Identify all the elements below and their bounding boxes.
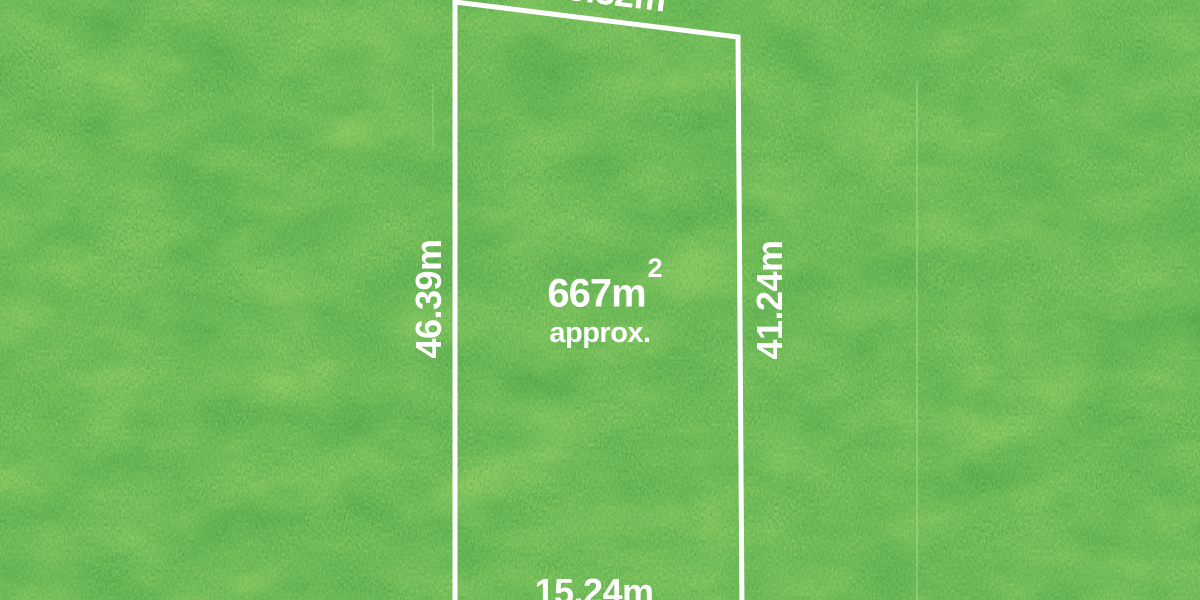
grass-background bbox=[0, 0, 1200, 600]
land-lot-image: 15.32m 46.39m 41.24m 15.24m 667m2 approx… bbox=[0, 0, 1200, 600]
